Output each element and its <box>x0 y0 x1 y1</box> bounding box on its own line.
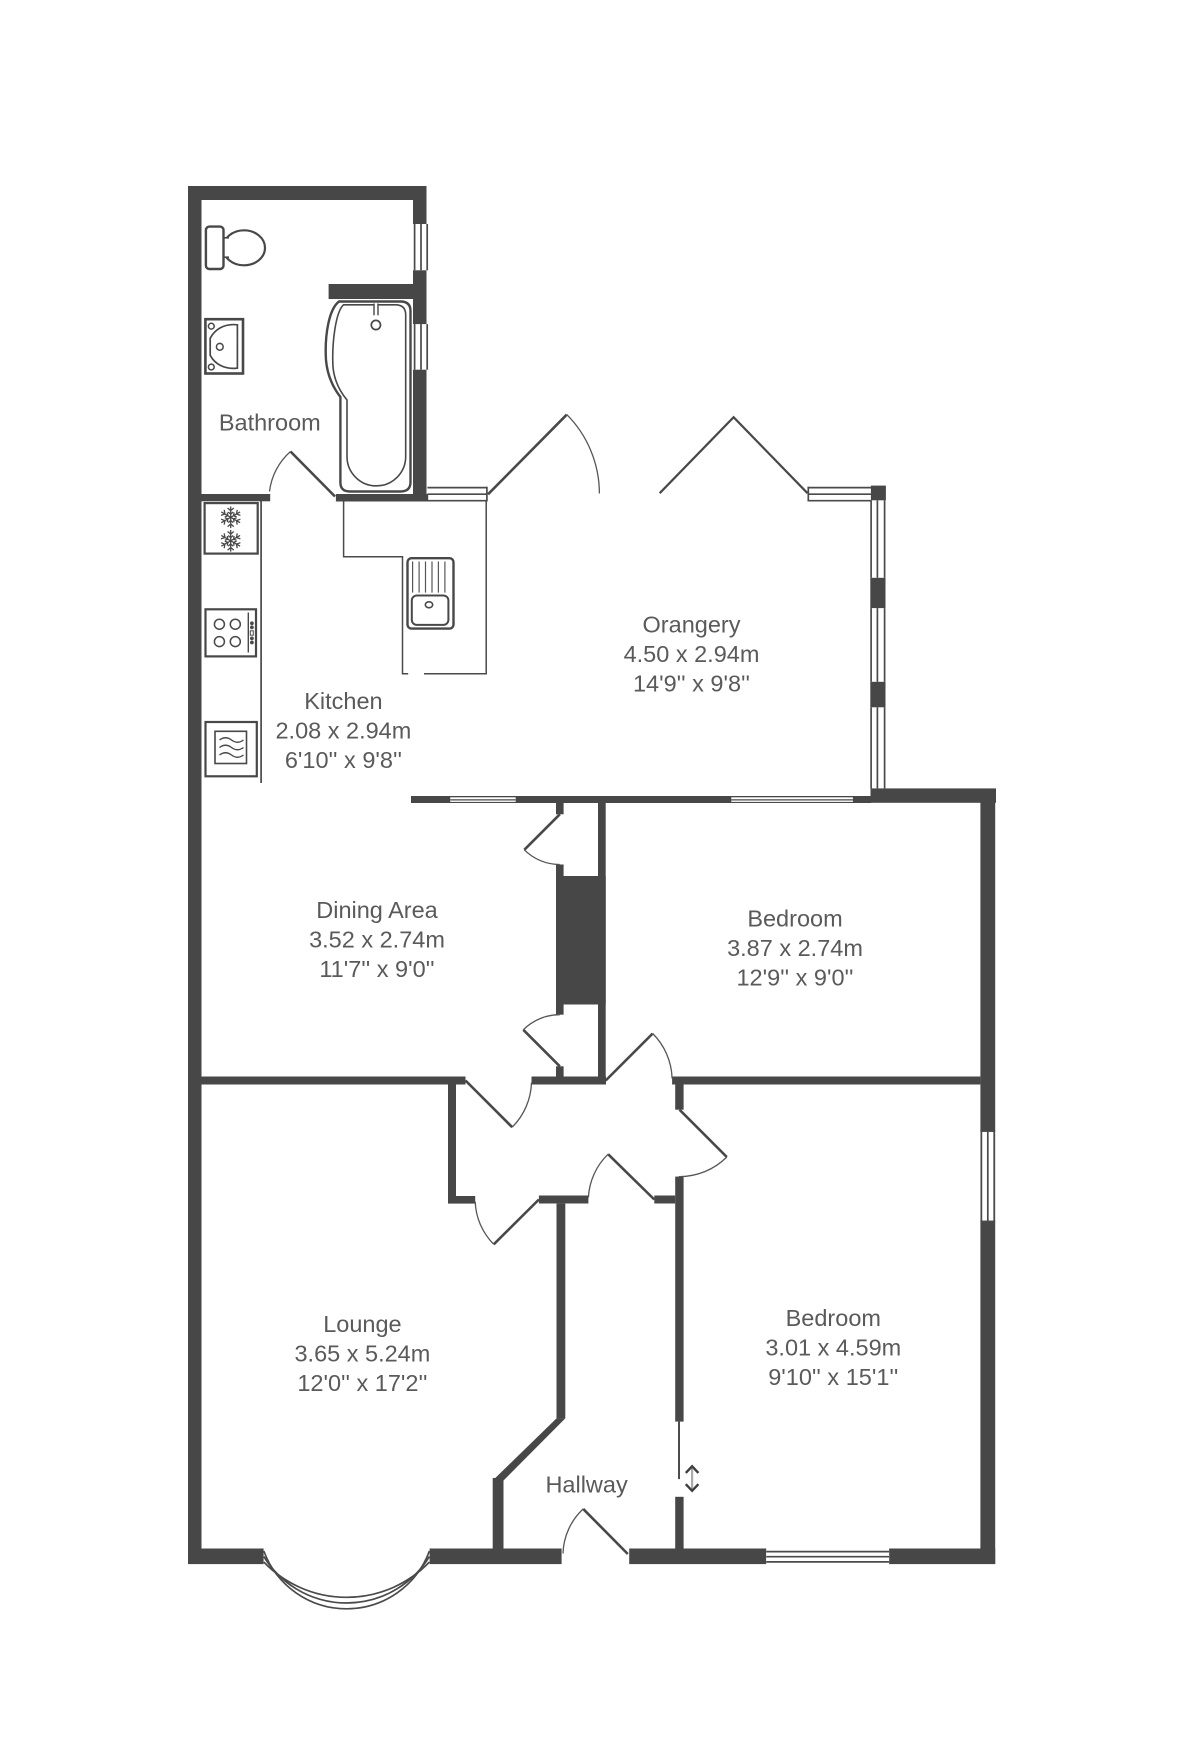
svg-text:4.50 x 2.94m: 4.50 x 2.94m <box>624 641 760 667</box>
svg-text:Orangery: Orangery <box>643 611 741 637</box>
svg-text:14'9'' x 9'8'': 14'9'' x 9'8'' <box>633 670 750 696</box>
svg-text:3.52 x 2.74m: 3.52 x 2.74m <box>309 926 445 952</box>
svg-text:3.65 x 5.24m: 3.65 x 5.24m <box>294 1340 430 1366</box>
svg-text:Bedroom: Bedroom <box>747 905 842 931</box>
svg-text:Dining Area: Dining Area <box>316 897 438 923</box>
svg-text:Kitchen: Kitchen <box>304 688 382 714</box>
svg-text:2.08 x 2.94m: 2.08 x 2.94m <box>275 717 411 743</box>
svg-text:Bedroom: Bedroom <box>786 1305 881 1331</box>
svg-text:Hallway: Hallway <box>545 1471 628 1497</box>
svg-text:Bathroom: Bathroom <box>219 409 321 435</box>
svg-text:12'9'' x 9'0'': 12'9'' x 9'0'' <box>736 964 853 990</box>
svg-text:3.87 x 2.74m: 3.87 x 2.74m <box>727 935 863 961</box>
svg-text:12'0'' x 17'2'': 12'0'' x 17'2'' <box>297 1370 427 1396</box>
svg-text:Lounge: Lounge <box>323 1311 401 1337</box>
svg-text:6'10'' x 9'8'': 6'10'' x 9'8'' <box>285 747 402 773</box>
svg-text:3.01 x 4.59m: 3.01 x 4.59m <box>765 1334 901 1360</box>
svg-text:9'10'' x 15'1'': 9'10'' x 15'1'' <box>768 1364 898 1390</box>
svg-text:11'7'' x 9'0'': 11'7'' x 9'0'' <box>319 956 434 982</box>
